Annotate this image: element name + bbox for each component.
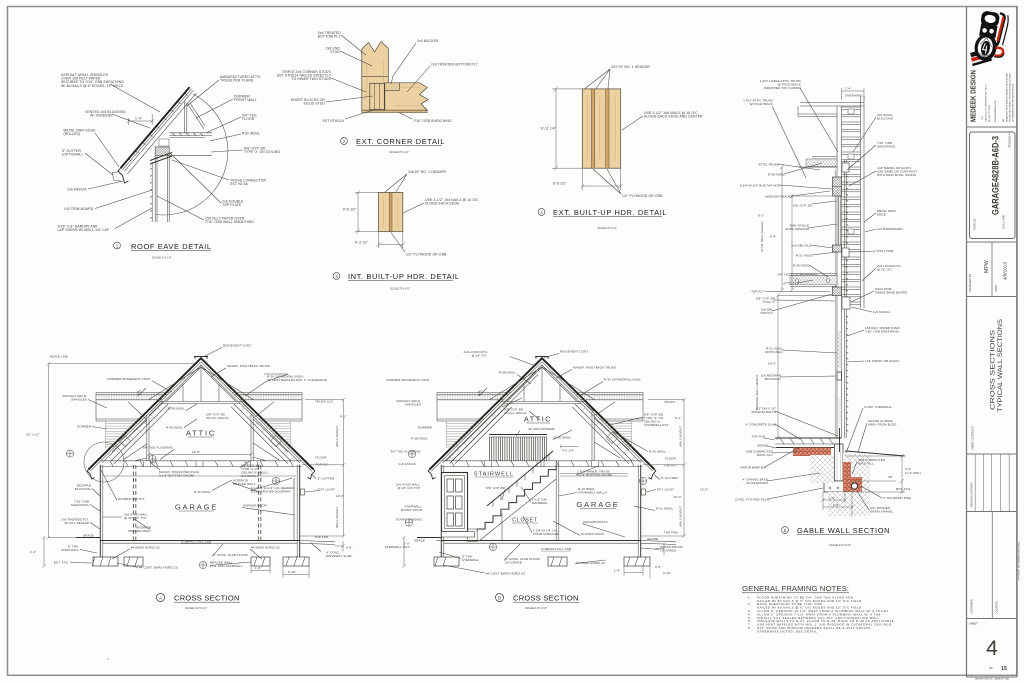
svg-text:GARAGE DOOR: GARAGE DOOR (243, 504, 268, 508)
svg-text:AWAY FROM BLDG.: AWAY FROM BLDG. (868, 422, 897, 426)
svg-text:R-38 INSUL: R-38 INSUL (411, 437, 428, 441)
svg-text:GRADE: GRADE (83, 534, 94, 538)
svg-text:ENTRY DOOR: ENTRY DOOR (401, 508, 423, 512)
svg-text:SST H2.5A: SST H2.5A (230, 182, 249, 186)
svg-text:(OPTIONAL): (OPTIONAL) (765, 350, 783, 354)
svg-text:BLOCKING: BLOCKING (75, 487, 92, 491)
svg-text:OF: OF (989, 666, 993, 670)
svg-text:BOT. FTG.: BOT. FTG. (54, 561, 69, 565)
svg-text:WITH MAIN BLDG. SIDING: WITH MAIN BLDG. SIDING (877, 173, 917, 177)
svg-text:STAIR STRINGER: STAIR STRINGER (533, 532, 560, 536)
svg-text:CROSS SECTION: CROSS SECTION (513, 594, 579, 603)
svg-text:1'-0": 1'-0" (135, 117, 143, 121)
svg-text:SCALE 1/2"=1'-0": SCALE 1/2"=1'-0" (829, 543, 851, 547)
svg-text:TOP FND.: TOP FND. (664, 531, 679, 535)
svg-text:VAPOR BARRIER: VAPOR BARRIER (740, 466, 766, 470)
svg-text:STUD: STUD (330, 50, 340, 54)
svg-text:ON ALL WALLS: ON ALL WALLS (206, 416, 229, 420)
svg-text:1458 SE 27TH CRESCENT DR. NE22: 1458 SE 27TH CRESCENT DR. NE22 (986, 84, 988, 122)
svg-text:GARAGE: GARAGE (576, 500, 619, 509)
svg-text:MEDEEK DESIGN: MEDEEK DESIGN (969, 70, 978, 122)
svg-text:BACK FILL: BACK FILL (757, 453, 773, 457)
svg-text:7/16" OSB SHEATHING: 7/16" OSB SHEATHING (865, 329, 900, 333)
svg-text:DORMER RIDGEVENT CONT.: DORMER RIDGEVENT CONT. (107, 377, 151, 381)
svg-text:COMPACT FILL SSB: COMPACT FILL SSB (541, 547, 571, 551)
svg-text:GARAGE WALL HEIGHT: GARAGE WALL HEIGHT (755, 374, 759, 410)
svg-text:0'-10": 0'-10" (663, 571, 671, 575)
svg-text:ATTIC: ATTIC (186, 429, 216, 438)
svg-text:42" BALUSTRADE: 42" BALUSTRADE (528, 427, 555, 431)
svg-text:W/ VENT BAFFLES MIN. 1" CLEARA: W/ VENT BAFFLES MIN. 1" CLEARANCE (267, 378, 327, 382)
svg-text:SCALE 3"=1'-0": SCALE 3"=1'-0" (389, 150, 409, 154)
svg-text:SHEET CONTENTS: SHEET CONTENTS (971, 426, 975, 450)
svg-text:SCALE 1/4"=1'-0": SCALE 1/4"=1'-0" (525, 606, 547, 610)
svg-text:SHINGLES: SHINGLES (405, 402, 421, 406)
svg-text:W/ 8d NAILS @ 6" EDGES, 12" FI: W/ 8d NAILS @ 6" EDGES, 12" FIELD (61, 84, 124, 88)
svg-text:OF DRAWINGS MAY BE REPRODUCED: OF DRAWINGS MAY BE REPRODUCED (1012, 83, 1015, 122)
svg-text:4'-5 1/4": 4'-5 1/4" (562, 449, 574, 453)
svg-text:MEDEEK DESIGN - GARAGE PLAN: MEDEEK DESIGN - GARAGE PLAN (975, 678, 1010, 681)
svg-text:R-38 INSUL: R-38 INSUL (768, 173, 785, 177)
svg-text:TRUSS: TRUSS (664, 400, 675, 404)
svg-text:TYPE 'X': TYPE 'X' (762, 300, 775, 304)
svg-text:PLAN NO.: PLAN NO. (973, 218, 977, 230)
svg-text:STAIRWELL EXT.: STAIRWELL EXT. (644, 423, 669, 427)
svg-text:OVER ARCHED DOORWAY: OVER ARCHED DOORWAY (251, 489, 291, 493)
svg-text:SCALE 3"=1'-0": SCALE 3"=1'-0" (597, 226, 617, 230)
svg-text:10'-0": 10'-0" (768, 362, 776, 366)
svg-text:SST STHD14: SST STHD14 (322, 119, 344, 123)
svg-text:4: 4 (986, 637, 998, 660)
svg-text:GABLE WALL SECTION: GABLE WALL SECTION (797, 526, 890, 535)
svg-text:EXT. LIGHT: EXT. LIGHT (657, 488, 674, 492)
svg-text:CLOSET: CLOSET (512, 518, 538, 524)
svg-text:DORMER: DORMER (418, 426, 433, 430)
svg-text:RIDGE LINE: RIDGE LINE (50, 355, 68, 359)
svg-text:ATTIC TRUSS: ATTIC TRUSS (759, 163, 780, 167)
svg-text:#4 CONT. BARS HORIZ (2): #4 CONT. BARS HORIZ (2) (139, 566, 178, 570)
svg-text:@ 24" O/C: @ 24" O/C (472, 353, 488, 357)
svg-text:GARAGE4828B-A6D-3: GARAGE4828B-A6D-3 (991, 136, 1002, 215)
svg-text:ATTIC FLR: ATTIC FLR (783, 282, 800, 286)
svg-text:7/16" OSB WALL SHEATHING: 7/16" OSB WALL SHEATHING (205, 220, 254, 224)
svg-text:ATTIC WALL HEIGHT: ATTIC WALL HEIGHT (760, 221, 764, 252)
svg-text:1'-4": 1'-4" (829, 496, 835, 500)
svg-text:6'-5 1/2": 6'-5 1/2" (553, 182, 567, 186)
svg-text:7/16" OSB SHEATHING: 7/16" OSB SHEATHING (413, 119, 452, 123)
svg-text:0'-6": 0'-6" (346, 546, 352, 550)
svg-text:4" CONC. SLAB FLOOR: 4" CONC. SLAB FLOOR (213, 553, 249, 557)
svg-text:WALL HEIGHT: WALL HEIGHT (679, 426, 683, 447)
svg-text:STAIRWELL: STAIRWELL (241, 474, 259, 478)
svg-text:CLOSET DOOR: CLOSET DOOR (581, 532, 605, 536)
svg-text:5" GUTTER: 5" GUTTER (318, 477, 336, 481)
svg-text:SHEATHING: SHEATHING (71, 503, 90, 507)
svg-text:2x6 TREATED BOTTOM PLT.: 2x6 TREATED BOTTOM PLT. (431, 63, 479, 67)
svg-text:DRIVEWAY SLAB: DRIVEWAY SLAB (326, 554, 351, 558)
svg-text:W/ PIGGYBACK: W/ PIGGYBACK (750, 102, 773, 106)
svg-text:8'-1": 8'-1" (340, 415, 346, 419)
svg-text:GARAGE: GARAGE (175, 503, 218, 512)
svg-text:HANDRAIL: HANDRAIL (532, 501, 548, 505)
svg-text:DORMER RIDGEVENT CONT.: DORMER RIDGEVENT CONT. (386, 378, 430, 382)
svg-text:10'-0": 10'-0" (700, 488, 708, 492)
svg-text:FRONT WALL: FRONT WALL (234, 98, 257, 102)
svg-text:4/8/2013: 4/8/2013 (1003, 262, 1008, 280)
svg-text:2X2 DF NO. 1 HEADER: 2X2 DF NO. 1 HEADER (611, 65, 650, 69)
svg-text:9-1/4"x9-1/4" BUILTUP HDR.: 9-1/4"x9-1/4" BUILTUP HDR. (740, 184, 781, 188)
svg-text:HUNG WINDOW: HUNG WINDOW (785, 227, 809, 231)
svg-text:1x6 FASCIA: 1x6 FASCIA (399, 462, 416, 466)
svg-text:6'-11 1/4": 6'-11 1/4" (541, 127, 557, 131)
svg-text:GABLE BAND BOARD: GABLE BAND BOARD (875, 290, 908, 294)
svg-text:1x6 FASCIA: 1x6 FASCIA (67, 188, 87, 192)
svg-text:TYPICAL WALL SECTIONS: TYPICAL WALL SECTIONS (998, 319, 1004, 412)
svg-text:SCALE 1/4"=1'-0": SCALE 1/4"=1'-0" (185, 606, 207, 610)
svg-text:5" GUTTER: 5" GUTTER (661, 476, 679, 480)
svg-text:8'-1": 8'-1" (758, 214, 764, 218)
svg-text:9-1/4" BOTTOM CHORD: 9-1/4" BOTTOM CHORD (577, 473, 613, 477)
svg-text:BLOCKING: BLOCKING (765, 377, 782, 381)
svg-text:@ 16" O/C TYP: @ 16" O/C TYP (398, 486, 420, 490)
svg-text:BRACED WALL: BRACED WALL (129, 529, 152, 533)
svg-text:TOP PLT.: TOP PLT. (664, 464, 678, 468)
svg-text:FTG. AND STEMWALL: FTG. AND STEMWALL (210, 564, 243, 568)
svg-text:WINDOW HEADER: WINDOW HEADER (765, 195, 794, 199)
svg-text:TO INNER TWO STUDS: TO INNER TWO STUDS (291, 77, 331, 81)
svg-text:AS REQUIRED: AS REQUIRED (746, 481, 769, 485)
svg-text:3/4" T&G FLOORING: 3/4" T&G FLOORING (143, 446, 174, 450)
svg-text:(1'-6" MIN.): (1'-6" MIN.) (905, 471, 921, 475)
svg-text:10'-0": 10'-0" (674, 495, 682, 499)
svg-text:3'-4": 3'-4" (30, 550, 36, 554)
svg-text:COPYRIGHT 2013 MEDEEK DESIGN I: COPYRIGHT 2013 MEDEEK DESIGN INC. (1019, 540, 1021, 581)
svg-text:0'-10": 0'-10" (288, 570, 296, 574)
svg-text:SHINGLES: SHINGLES (71, 397, 87, 401)
svg-text:#4 BARS HORIZ (3): #4 BARS HORIZ (3) (576, 561, 605, 565)
svg-text:9-1/4" BOTTOM CHORD: 9-1/4" BOTTOM CHORD (159, 473, 195, 477)
svg-text:PH 555.777.5155: PH 555.777.5155 (989, 104, 991, 122)
svg-text:8.: 8. (748, 626, 751, 630)
svg-text:RIDGEVENT CONT.: RIDGEVENT CONT. (223, 344, 252, 348)
svg-text:SCALE 1"=1'-0": SCALE 1"=1'-0" (152, 256, 172, 260)
svg-text:SOLID STUD: SOLID STUD (303, 102, 325, 106)
svg-text:6'-3 1/2": 6'-3 1/2" (355, 241, 369, 245)
svg-text:R-30 INSUL: R-30 INSUL (194, 490, 211, 494)
svg-text:TRUSS PER PLANS: TRUSS PER PLANS (220, 79, 254, 83)
svg-text:@ 16" O/C TYP: @ 16" O/C TYP (124, 516, 146, 520)
svg-text:REVISION HISTORY: REVISION HISTORY (970, 482, 974, 507)
svg-text:DOUBLE TOP PLT.: DOUBLE TOP PLT. (118, 497, 145, 501)
svg-text:BLOCKING: BLOCKING (877, 116, 894, 120)
svg-text:1x2 TRIM BOARD: 1x2 TRIM BOARD (64, 207, 94, 211)
svg-text:BACK FILL: BACK FILL (858, 461, 874, 465)
svg-text:4" CONCRETE SLAB: 4" CONCRETE SLAB (745, 423, 776, 427)
svg-text:1'-4": 1'-4" (845, 87, 851, 91)
svg-text:WALL HEIGHT: WALL HEIGHT (679, 506, 683, 527)
svg-text:W/ SCREENS: W/ SCREENS (90, 114, 113, 118)
svg-text:#4 CONT. BARS HORIZ (2): #4 CONT. BARS HORIZ (2) (486, 572, 525, 576)
svg-text:LAP SIDING W/ MIN 1-1/4" LAP: LAP SIDING W/ MIN 1-1/4" LAP (58, 228, 110, 232)
svg-text:10'-0": 10'-0" (336, 494, 344, 498)
svg-text:OVERHANG: OVERHANG (845, 94, 864, 98)
svg-text:RIDGEVENT CONT.: RIDGEVENT CONT. (560, 350, 589, 354)
svg-text:SHEET: SHEET (969, 622, 978, 626)
svg-text:PROTECTED UNDER COPYRIGHT LAW,: PROTECTED UNDER COPYRIGHT LAW, NO PART (1009, 73, 1012, 122)
svg-text:FLOOR: FLOOR (665, 457, 677, 461)
svg-text:6'-8": 6'-8" (770, 235, 776, 239)
svg-text:MANUF. PIGGYBACK TRUSS: MANUF. PIGGYBACK TRUSS (573, 366, 616, 370)
svg-text:STEM WALL: STEM WALL (61, 548, 79, 552)
svg-text:DESIGNED BY: DESIGNED BY (968, 274, 972, 292)
svg-text:4" DIA DRAIN PIPE: 4" DIA DRAIN PIPE (883, 496, 911, 500)
svg-text:CUSTOMER: CUSTOMER (970, 599, 974, 614)
svg-text:GRADE: GRADE (757, 444, 768, 448)
svg-text:GRADE: GRADE (647, 537, 658, 541)
svg-text:R-21 INSUL: R-21 INSUL (796, 254, 813, 258)
svg-text:2.: 2. (748, 602, 751, 606)
svg-text:1'-6": 1'-6" (255, 566, 261, 570)
svg-text:#4 BARS HORIZ (3): #4 BARS HORIZ (3) (251, 546, 280, 550)
svg-text:5/8" GYP. BD.: 5/8" GYP. BD. (486, 486, 506, 490)
svg-text:CROSS SECTIONS: CROSS SECTIONS (991, 330, 997, 410)
svg-text:R-38 INSUL: R-38 INSUL (499, 371, 516, 375)
svg-text:W/ SILL SEALER: W/ SILL SEALER (64, 521, 89, 525)
svg-text:R-21 INSUL: R-21 INSUL (656, 507, 673, 511)
svg-text:GENERAL FRAMING NOTES:: GENERAL FRAMING NOTES: (742, 584, 849, 593)
svg-text:LAP SIDING OR EQUIV.: LAP SIDING OR EQUIV. (865, 359, 900, 363)
svg-text:DRAWINGS PROVIDED BY MEDEEK DE: DRAWINGS PROVIDED BY MEDEEK DESIGN ARE (1006, 73, 1009, 122)
svg-text:ALONG EACH EDGE: ALONG EACH EDGE (425, 202, 460, 206)
svg-text:REVISION A-1: REVISION A-1 (1009, 131, 1012, 148)
svg-text:ATTIC: ATTIC (524, 415, 552, 424)
svg-text:TO GRADE: TO GRADE (660, 548, 676, 552)
svg-text:0'-6": 0'-6" (655, 565, 661, 569)
svg-text:@ 24" O/C: @ 24" O/C (877, 267, 893, 271)
svg-text:DORMER: DORMER (77, 425, 92, 429)
svg-text:2x4 BACKER: 2x4 BACKER (417, 39, 439, 43)
svg-text:ROOF EAVE DETAIL: ROOF EAVE DETAIL (131, 242, 212, 251)
svg-text:1.: 1. (748, 595, 751, 599)
svg-text:SCALE 1/48: SCALE 1/48 (1003, 215, 1006, 229)
svg-text:BRACED WALL: BRACED WALL (233, 482, 256, 486)
svg-text:WALL HEIGHT: WALL HEIGHT (335, 426, 339, 447)
svg-text:2x6 DBL SILL: 2x6 DBL SILL (791, 244, 811, 248)
svg-text:DATE: DATE (994, 285, 998, 292)
svg-text:R-30 CATHEDRAL INSUL: R-30 CATHEDRAL INSUL (604, 378, 641, 382)
svg-text:TOP FND.: TOP FND. (315, 535, 330, 539)
svg-text:INT. BUILT-UP HDR. DETAIL: INT. BUILT-UP HDR. DETAIL (348, 272, 460, 281)
svg-text:#4 BARS HORIZ (3): #4 BARS HORIZ (3) (131, 546, 160, 550)
svg-text:(ROLLED): (ROLLED) (64, 132, 81, 136)
svg-text:(DROPPED TOP CHORD): (DROPPED TOP CHORD) (764, 86, 801, 90)
svg-text:TYPE 'X' ON CEILING: TYPE 'X' ON CEILING (244, 150, 280, 154)
svg-text:2x6 RAKEBOARD: 2x6 RAKEBOARD (877, 227, 904, 231)
svg-text:1'-8": 1'-8" (833, 503, 839, 507)
svg-text:R-38 INSUL: R-38 INSUL (166, 426, 183, 430)
svg-text:DRAIN GRAVEL: DRAIN GRAVEL (870, 509, 894, 513)
svg-text:18": 18" (888, 475, 893, 479)
svg-text:SHEATHING: SHEATHING (877, 144, 896, 148)
svg-text:ALONG EACH EDGE AND CENTER: ALONG EACH EDGE AND CENTER (644, 115, 703, 119)
svg-text:15: 15 (1001, 666, 1007, 672)
svg-text:BOTTOM PLT.: BOTTOM PLT. (318, 35, 341, 39)
svg-text:1'-8": 1'-8" (614, 569, 620, 573)
svg-text:STEMWALL HGT.: STEMWALL HGT. (385, 545, 410, 549)
svg-text:TOP PLT.: TOP PLT. (316, 463, 330, 467)
svg-text:MANUF. PIGGYBACK TRUSS: MANUF. PIGGYBACK TRUSS (227, 364, 270, 368)
svg-text:MPW: MPW (984, 260, 990, 273)
svg-text:FLOOR: FLOOR (316, 456, 328, 460)
svg-text:EXT. LIGHT: EXT. LIGHT (318, 488, 335, 492)
svg-text:CONC. STEMWALL: CONC. STEMWALL (864, 405, 893, 409)
svg-text:6'-5 1/2": 6'-5 1/2" (343, 208, 357, 212)
svg-text:ON ALL WALLS: ON ALL WALLS (504, 411, 527, 415)
svg-text:SCALE 3"=1'-0": SCALE 3"=1'-0" (390, 287, 410, 291)
svg-text:EXT. CORNER DETAIL: EXT. CORNER DETAIL (356, 137, 445, 146)
svg-text:3/4" T&G FLOOR: 3/4" T&G FLOOR (777, 273, 802, 277)
svg-text:ANCHOR BOLTS: ANCHOR BOLTS (751, 410, 776, 414)
svg-text:LOCATION: LOCATION (995, 601, 999, 614)
svg-text:BOT. FTG.: BOT. FTG. (896, 487, 911, 491)
svg-text:TRUSS CLG.: TRUSS CLG. (315, 400, 334, 404)
svg-text:TOP FND: TOP FND (751, 435, 765, 439)
svg-text:STAIRS LANDING: STAIRS LANDING (396, 518, 423, 522)
svg-text:1/2" PLYWOOD OR OSB: 1/2" PLYWOOD OR OSB (622, 194, 663, 198)
svg-text:14'-0": 14'-0" (192, 450, 200, 454)
svg-text:R-38 INSUL: R-38 INSUL (168, 407, 185, 411)
svg-text:EDGE: EDGE (877, 212, 886, 216)
svg-text:EXT. BUILT-UP HDR. DETAIL: EXT. BUILT-UP HDR. DETAIL (553, 208, 667, 217)
svg-text:R-38 INSUL: R-38 INSUL (793, 264, 810, 268)
svg-text:WALL HEIGHT: WALL HEIGHT (335, 507, 339, 528)
svg-text:8'-1": 8'-1" (675, 416, 681, 420)
svg-text:STAIRWELL WALLS: STAIRWELL WALLS (578, 490, 607, 494)
svg-text:WWW.MEDEEK.COM: WWW.MEDEEK.COM (995, 100, 997, 122)
svg-text:TOP PLATE: TOP PLATE (222, 203, 242, 207)
svg-text:1x6 FASCIA: 1x6 FASCIA (873, 310, 890, 314)
svg-text:OTHERWISE NOTED, SEE DETAIL: OTHERWISE NOTED, SEE DETAIL (757, 629, 817, 633)
svg-text:1/2" PLYWOOD OR OSB: 1/2" PLYWOOD OR OSB (406, 253, 447, 257)
svg-text:3/4" T&G FLOORING: 3/4" T&G FLOORING (391, 450, 422, 454)
svg-text:B: B (498, 596, 501, 601)
svg-text:R-30 INSUL: R-30 INSUL (649, 450, 666, 454)
svg-text:CROSS SECTION: CROSS SECTION (174, 594, 240, 603)
svg-text:STAIRWELL: STAIRWELL (474, 472, 514, 478)
svg-text:CONC. FTG PER PLAN: CONC. FTG PER PLAN (735, 498, 769, 502)
svg-text:25'-1 1/2": 25'-1 1/2" (26, 433, 40, 437)
svg-text:TOP PLT: TOP PLT (751, 290, 764, 294)
svg-text:R-38 INSUL: R-38 INSUL (554, 436, 571, 440)
svg-text:STEMWALL: STEMWALL (462, 558, 479, 562)
svg-text:5/8" GYP. BD.: 5/8" GYP. BD. (793, 204, 813, 208)
svg-text:R30 INSUL: R30 INSUL (242, 132, 260, 136)
svg-text:FLOOR: FLOOR (242, 117, 255, 121)
svg-text:ANCHOR BOLTS: ANCHOR BOLTS (583, 520, 608, 524)
svg-text:GRADE: GRADE (414, 539, 425, 543)
svg-text:2x6 DF NO. 1 HEADER: 2x6 DF NO. 1 HEADER (408, 170, 447, 174)
svg-text:ON GRADE: ON GRADE (505, 560, 522, 564)
svg-text:TOP PLT: TOP PLT (760, 311, 773, 315)
svg-text:TEL.: TEL. (982, 115, 984, 120)
svg-text:5/4x4 TRIM: 5/4x4 TRIM (877, 249, 894, 253)
svg-text:COMPACT FILL SSB: COMPACT FILL SSB (181, 540, 211, 544)
svg-text:(OPTIONAL): (OPTIONAL) (62, 153, 83, 157)
